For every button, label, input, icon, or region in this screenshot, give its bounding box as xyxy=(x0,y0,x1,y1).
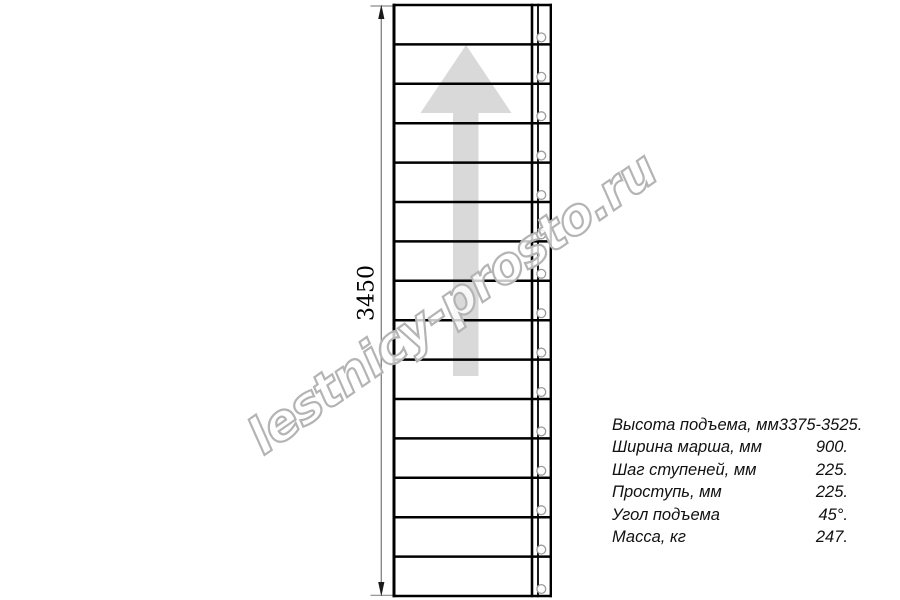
fastener-circle-icon xyxy=(537,269,546,278)
dimension-arrowhead-top-icon xyxy=(378,5,384,20)
fastener-circle-icon xyxy=(537,506,546,515)
direction-up-arrow-icon xyxy=(421,45,512,376)
fastener-circle-icon xyxy=(537,348,546,357)
fastener-circle-icon xyxy=(537,466,546,475)
fastener-circle-icon xyxy=(537,585,546,594)
dimension-label: 3450 xyxy=(355,265,380,321)
spec-row-mass: Масса, кг 247. xyxy=(612,526,848,548)
spec-label: Высота подъема, мм xyxy=(612,414,779,436)
fastener-circle-icon xyxy=(537,309,546,318)
spec-value: 225. xyxy=(816,481,848,503)
spec-value: 900. xyxy=(816,436,848,458)
spec-label: Угол подъема xyxy=(612,504,720,526)
fastener-circles-group xyxy=(537,33,546,593)
spec-table: Высота подъема, мм 3375-3525. Ширина мар… xyxy=(612,414,848,548)
spec-label: Масса, кг xyxy=(612,526,686,548)
fastener-circle-icon xyxy=(537,191,546,200)
spec-value: 45°. xyxy=(818,504,848,526)
fastener-circle-icon xyxy=(537,33,546,42)
spec-row-step: Шаг ступеней, мм 225. xyxy=(612,459,848,481)
dimension-arrowhead-bottom-icon xyxy=(378,582,384,597)
spec-value: 3375-3525. xyxy=(779,414,863,436)
fastener-circle-icon xyxy=(537,427,546,436)
fastener-circle-icon xyxy=(537,388,546,397)
spec-row-height: Высота подъема, мм 3375-3525. xyxy=(612,414,848,436)
stair-drawing-page: 3450 Высота подъема, мм 3375-3525. Ширин… xyxy=(0,0,900,600)
fastener-circle-icon xyxy=(537,545,546,554)
fastener-circle-icon xyxy=(537,230,546,239)
spec-label: Ширина марша, мм xyxy=(612,436,762,458)
spec-row-angle: Угол подъема 45°. xyxy=(612,504,848,526)
spec-label: Шаг ступеней, мм xyxy=(612,459,756,481)
fastener-circle-icon xyxy=(537,151,546,160)
spec-row-tread: Проступь, мм 225. xyxy=(612,481,848,503)
spec-row-width: Ширина марша, мм 900. xyxy=(612,436,848,458)
spec-value: 247. xyxy=(816,526,848,548)
fastener-circle-icon xyxy=(537,72,546,81)
fastener-circle-icon xyxy=(537,112,546,121)
spec-value: 225. xyxy=(816,459,848,481)
spec-label: Проступь, мм xyxy=(612,481,722,503)
